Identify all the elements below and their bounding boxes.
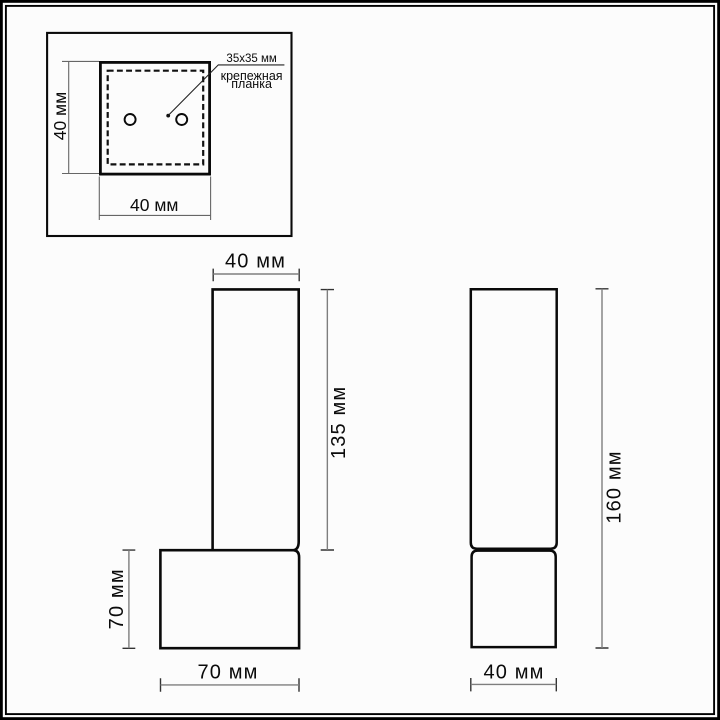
svg-text:планка: планка <box>231 77 272 91</box>
svg-text:70 мм: 70 мм <box>197 662 258 684</box>
svg-text:40 мм: 40 мм <box>130 195 178 215</box>
svg-text:70 мм: 70 мм <box>106 568 128 629</box>
svg-text:40 мм: 40 мм <box>483 662 544 684</box>
svg-text:40 мм: 40 мм <box>225 250 286 272</box>
svg-text:135 мм: 135 мм <box>328 386 350 459</box>
svg-text:35x35 мм: 35x35 мм <box>226 53 276 65</box>
svg-text:160 мм: 160 мм <box>603 450 625 523</box>
svg-text:40 мм: 40 мм <box>50 92 70 140</box>
